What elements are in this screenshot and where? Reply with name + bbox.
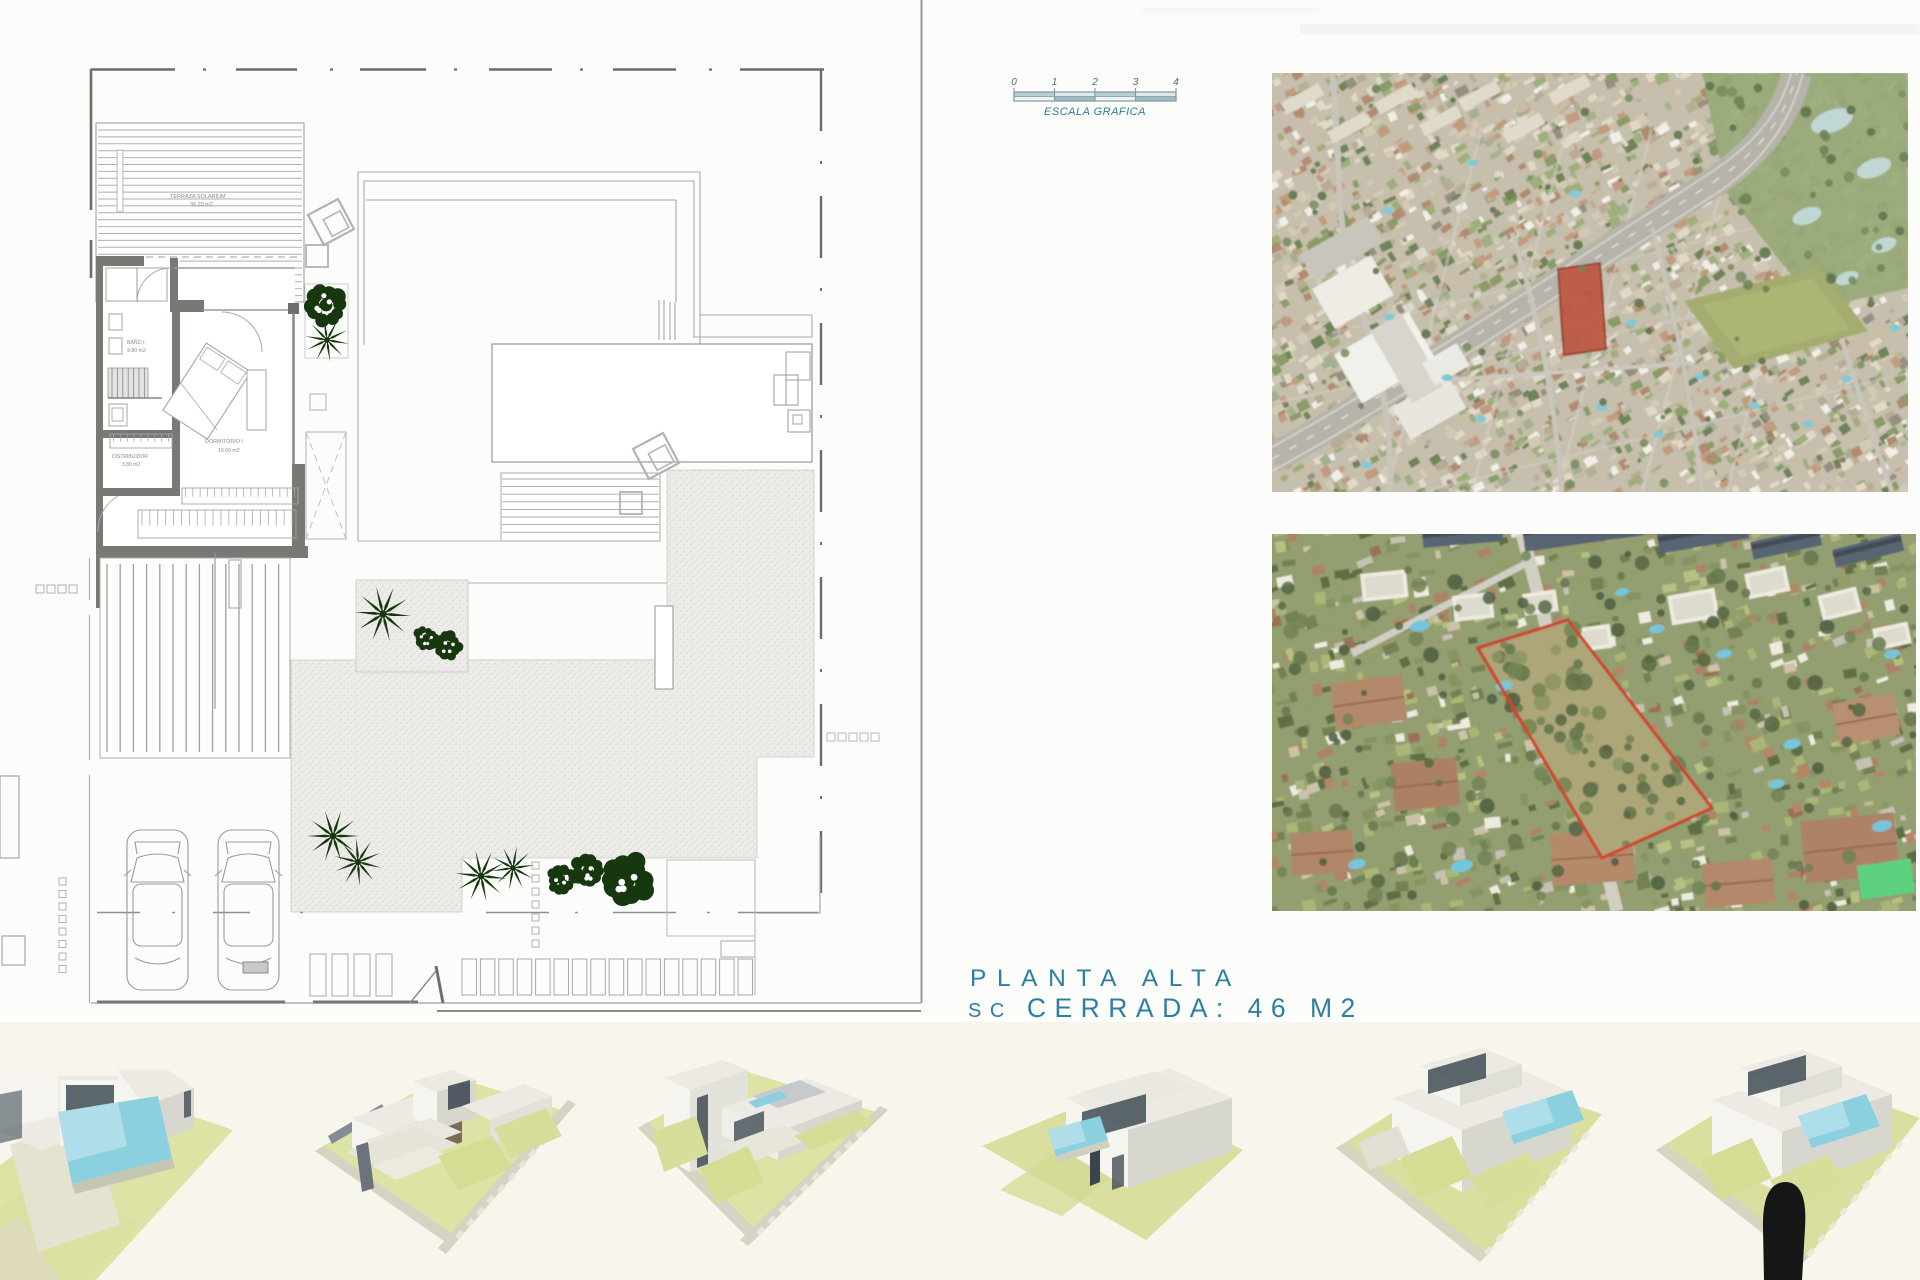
svg-text:4: 4 — [1173, 77, 1179, 88]
svg-text:SC CERRADA: 46 M2: SC CERRADA: 46 M2 — [968, 993, 1364, 1023]
svg-text:2: 2 — [1091, 77, 1098, 88]
svg-text:DORMITORIO I: DORMITORIO I — [205, 439, 243, 445]
svg-text:ESCALA GRAFICA: ESCALA GRAFICA — [1044, 106, 1146, 118]
svg-text:BAÑO I: BAÑO I — [127, 339, 145, 346]
svg-text:1: 1 — [1052, 77, 1058, 88]
svg-text:36.20 m2: 36.20 m2 — [190, 202, 213, 208]
svg-text:3.80 m2: 3.80 m2 — [122, 462, 140, 468]
svg-text:0: 0 — [1011, 77, 1017, 88]
svg-text:3: 3 — [1133, 77, 1139, 88]
svg-text:DISTRIBUIDOR: DISTRIBUIDOR — [112, 454, 148, 460]
svg-text:PLANTA ALTA: PLANTA ALTA — [970, 965, 1242, 992]
svg-text:TERRAZA SOLARIUM: TERRAZA SOLARIUM — [170, 194, 226, 200]
svg-text:9.80 m2: 9.80 m2 — [127, 348, 146, 354]
svg-text:19.60 m2: 19.60 m2 — [218, 448, 240, 454]
